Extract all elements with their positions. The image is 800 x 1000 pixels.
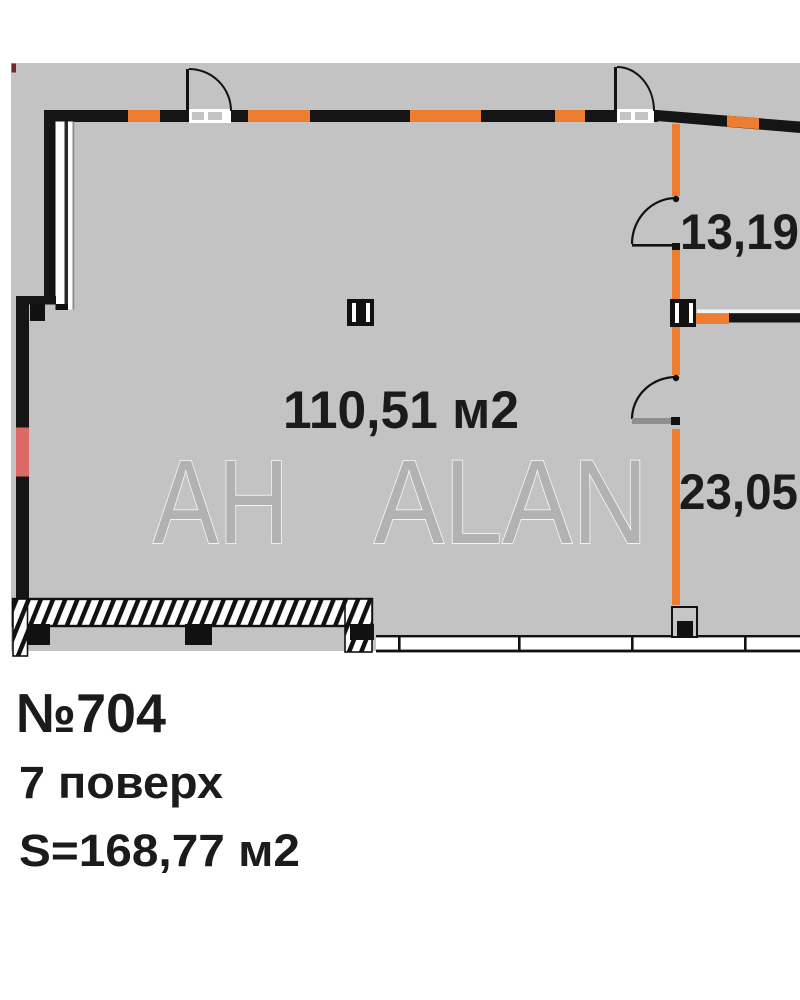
svg-text:№704: №704 — [16, 682, 166, 744]
svg-text:7 поверх: 7 поверх — [19, 757, 223, 808]
svg-text:23,05: 23,05 — [679, 464, 798, 520]
svg-text:ALAN: ALAN — [374, 435, 648, 569]
svg-text:110,51 м2: 110,51 м2 — [283, 381, 519, 440]
svg-text:АН: АН — [153, 435, 289, 569]
svg-text:13,19: 13,19 — [680, 204, 799, 260]
svg-text:S=168,77 м2: S=168,77 м2 — [19, 825, 300, 876]
